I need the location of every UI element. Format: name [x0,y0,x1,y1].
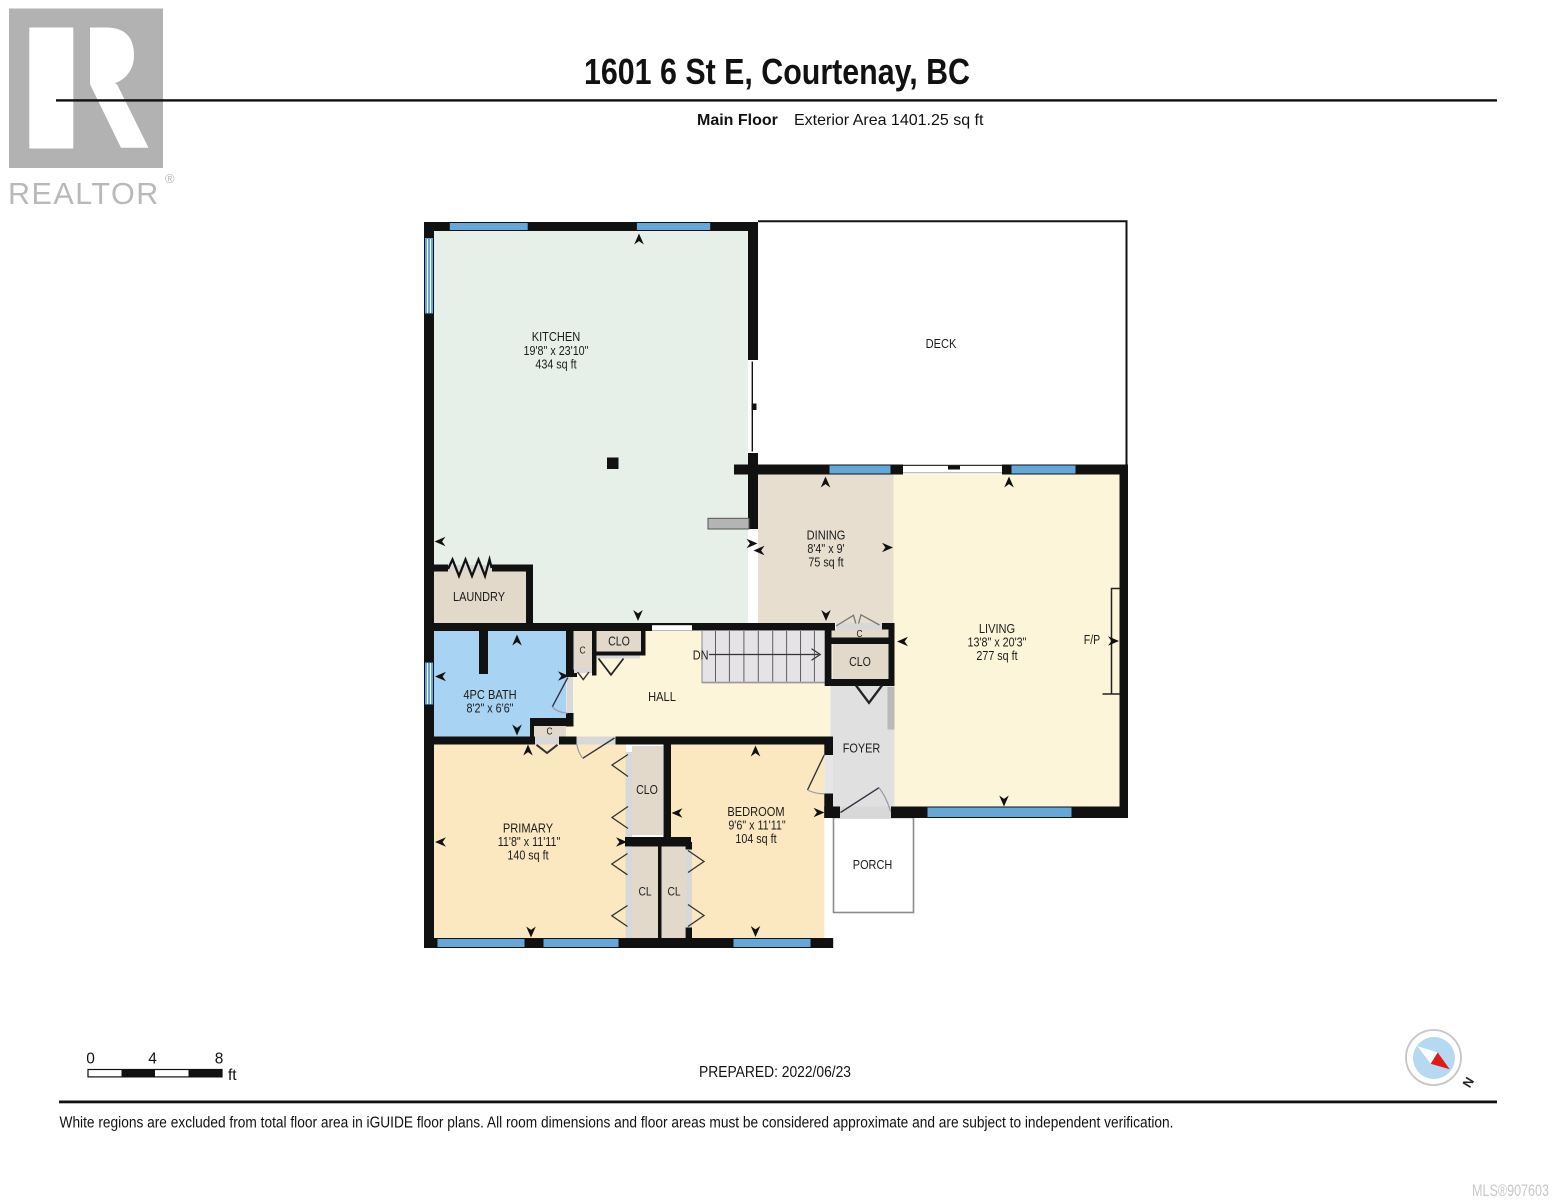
svg-text:C: C [579,645,585,656]
svg-text:CLO: CLO [636,783,658,797]
svg-text:®: ® [165,171,175,186]
svg-text:140 sq ft: 140 sq ft [507,848,549,863]
svg-text:1601 6 St E, Courtenay, BC: 1601 6 St E, Courtenay, BC [584,51,970,92]
svg-text:434 sq ft: 434 sq ft [535,357,577,372]
svg-text:0: 0 [86,1051,95,1068]
svg-text:LAUNDRY: LAUNDRY [453,589,505,604]
svg-text:CLO: CLO [608,635,630,649]
svg-text:PORCH: PORCH [853,857,892,872]
svg-text:Exterior Area 1401.25 sq ft: Exterior Area 1401.25 sq ft [794,112,984,129]
svg-text:CLO: CLO [849,655,871,669]
svg-text:104 sq ft: 104 sq ft [735,831,777,846]
svg-text:N: N [1460,1074,1478,1090]
svg-text:C: C [546,726,552,737]
svg-text:PREPARED: 2022/06/23: PREPARED: 2022/06/23 [699,1064,851,1081]
svg-text:277 sq ft: 277 sq ft [976,648,1018,663]
svg-text:MLS®907603: MLS®907603 [1472,1182,1549,1200]
svg-text:Main Floor: Main Floor [697,112,778,129]
svg-text:White regions are excluded fro: White regions are excluded from total fl… [60,1115,1174,1132]
svg-text:75 sq ft: 75 sq ft [808,555,844,570]
svg-text:8'2" x 6'6": 8'2" x 6'6" [467,701,514,716]
svg-text:DN: DN [693,648,709,663]
svg-text:4: 4 [148,1051,157,1068]
svg-text:FOYER: FOYER [843,741,881,756]
svg-text:CL: CL [667,886,680,899]
svg-text:KITCHEN: KITCHEN [532,329,581,344]
svg-text:REALTOR: REALTOR [8,177,160,211]
svg-text:HALL: HALL [648,689,676,704]
svg-text:ft: ft [228,1067,237,1084]
svg-text:C: C [856,628,862,639]
svg-text:DECK: DECK [926,336,957,351]
svg-text:8: 8 [215,1051,224,1068]
svg-text:F/P: F/P [1084,633,1101,647]
svg-text:CL: CL [638,886,651,899]
